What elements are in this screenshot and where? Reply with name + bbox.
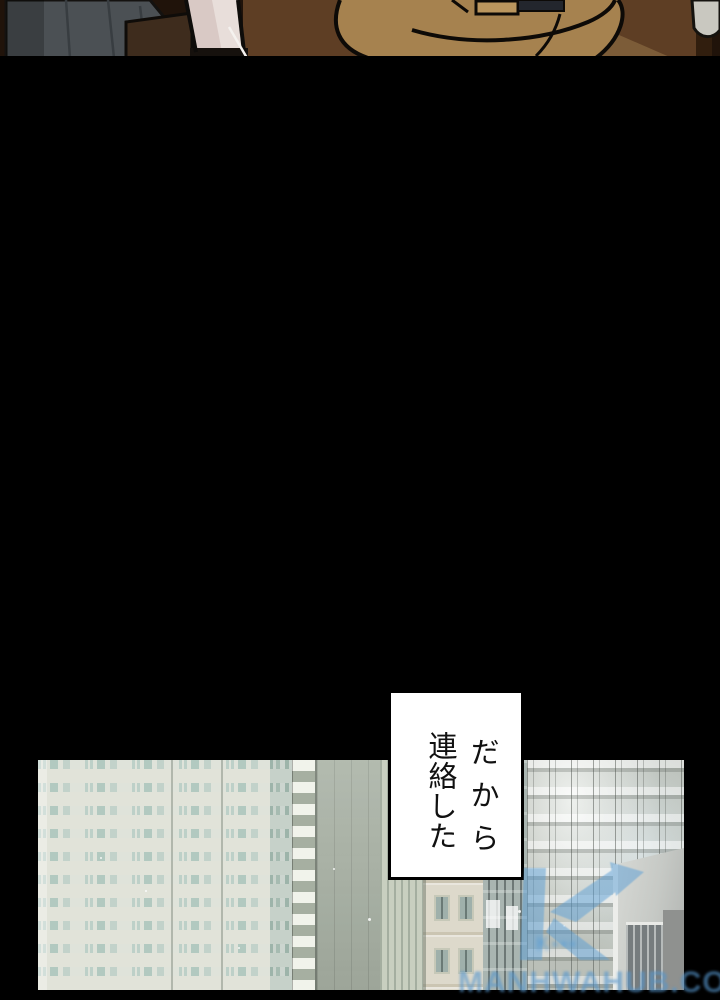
- window: [458, 948, 474, 974]
- snow-dot: [238, 947, 240, 949]
- top-panel-art: [0, 0, 720, 62]
- snow-dot: [518, 910, 521, 913]
- comic-page: { "comic": { "speech_bubble": { "full_te…: [0, 0, 720, 990]
- window: [434, 948, 450, 974]
- building-edge-highlight: [613, 848, 618, 990]
- window-grid-facade: [38, 760, 270, 990]
- classical-building: [423, 880, 483, 990]
- speech-column: 連絡した: [419, 731, 461, 887]
- striped-tower: [292, 760, 316, 990]
- facade-shadow-column: [270, 760, 292, 990]
- snow-dot: [333, 868, 335, 870]
- comic-panel-top: [0, 0, 720, 62]
- facade-edge-highlight: [38, 760, 47, 990]
- speech-column: だから: [461, 737, 503, 887]
- speech-bubble: だから 連絡した: [388, 690, 524, 880]
- shadow-band: [663, 910, 684, 990]
- flat-green-tower: [315, 760, 382, 990]
- speech-text: だから 連絡した: [419, 737, 503, 887]
- window: [434, 895, 450, 921]
- snow-dot: [145, 890, 147, 892]
- snow-dot: [100, 857, 102, 859]
- facade-corner-line: [171, 760, 173, 990]
- comic-panel-city: [38, 760, 684, 990]
- bright-pane: [486, 900, 500, 928]
- snow-dot: [563, 925, 565, 927]
- facade-corner-line: [221, 760, 223, 990]
- bright-pane: [506, 906, 518, 930]
- window: [458, 895, 474, 921]
- snow-dot: [368, 918, 371, 921]
- foreground-building-corner: [613, 848, 684, 990]
